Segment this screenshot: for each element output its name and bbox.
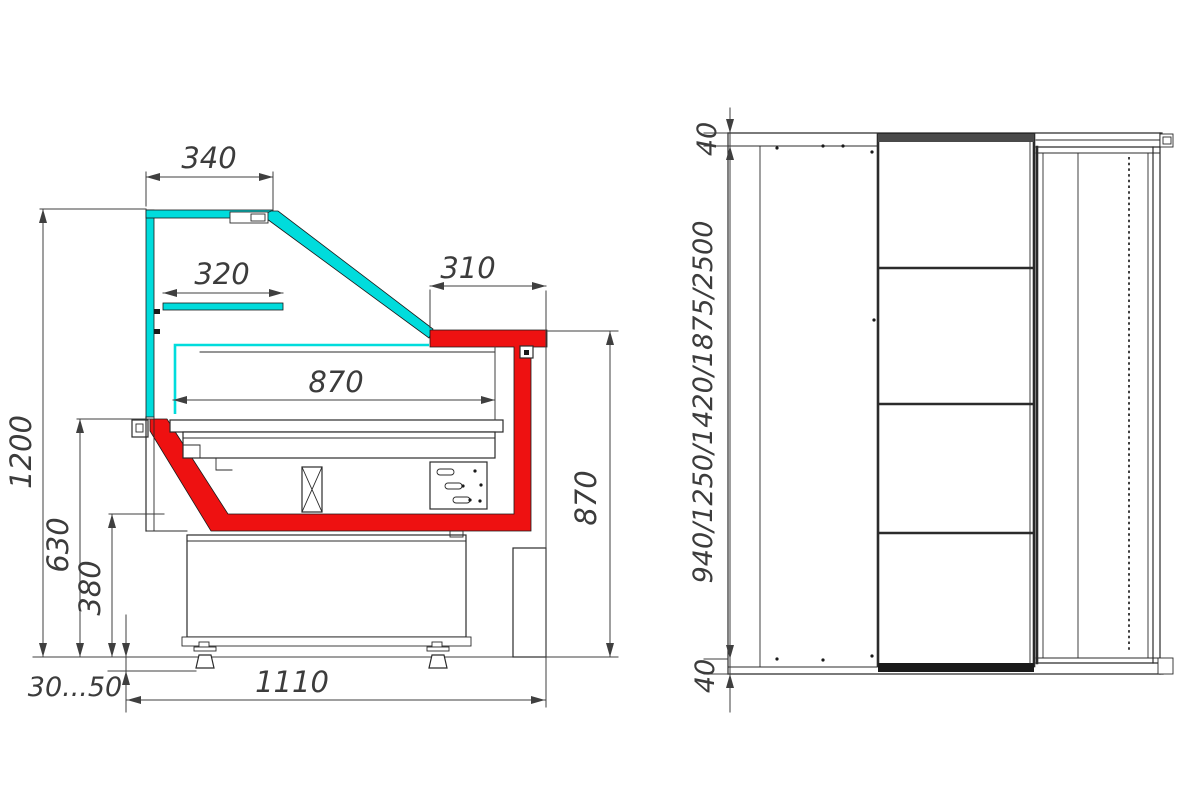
dim-label-310: 310 [440,251,495,285]
dim-label-320: 320 [194,257,249,291]
rear-right-section [1036,133,1173,674]
front-glass [146,210,154,417]
dim-front-height: 630 [41,419,152,657]
dim-label-40-top: 40 [692,122,723,156]
rear-rivet-dots [775,144,875,661]
lamp-housing [230,212,268,223]
rear-view: 40 940/1250/1420/1875/2500 40 [688,108,1173,712]
glass-clip-upper [154,309,160,314]
dim-base-height: 380 [73,514,164,657]
drawing-svg: 340 320 310 870 1200 [0,0,1200,800]
dim-canopy-width: 340 [146,141,273,210]
corner-bracket-bottom [1158,658,1173,674]
dim-label-870-rear: 870 [569,470,603,525]
dim-label-1200: 1200 [4,415,38,489]
dim-label-lengths: 940/1250/1420/1875/2500 [688,221,719,584]
slope-glass [267,211,433,338]
rear-bracket-detail [520,346,533,358]
dim-label-380: 380 [73,560,107,615]
rear-pedestal [513,548,546,657]
technical-drawing-canvas: 340 320 310 870 1200 [0,0,1200,800]
deck-slab-lower [183,432,495,458]
base-cabinet [182,531,471,646]
vent-grille [430,462,487,509]
dim-rear-height: 870 [548,331,618,657]
glass-clip-lower [154,329,160,334]
corner-bracket-top [1160,134,1173,147]
inner-liner-glass [175,345,429,414]
dim-display-depth: 870 [173,347,495,420]
glass-elements [146,210,433,417]
deck-slab-top [170,420,503,432]
dim-label-30-50: 30...50 [28,672,122,703]
side-view: 340 320 310 870 1200 [4,141,618,712]
inner-shelf-glass [163,303,283,310]
dim-case-lengths: 940/1250/1420/1875/2500 [688,221,734,659]
dim-label-40-bottom: 40 [690,659,721,693]
dim-label-1110: 1110 [255,665,329,699]
dim-label-870-depth: 870 [308,365,363,399]
dim-label-340: 340 [181,141,236,175]
rear-center-panel [878,134,1034,672]
dim-shelf-width: 320 [163,257,283,297]
dim-label-630: 630 [41,517,75,572]
